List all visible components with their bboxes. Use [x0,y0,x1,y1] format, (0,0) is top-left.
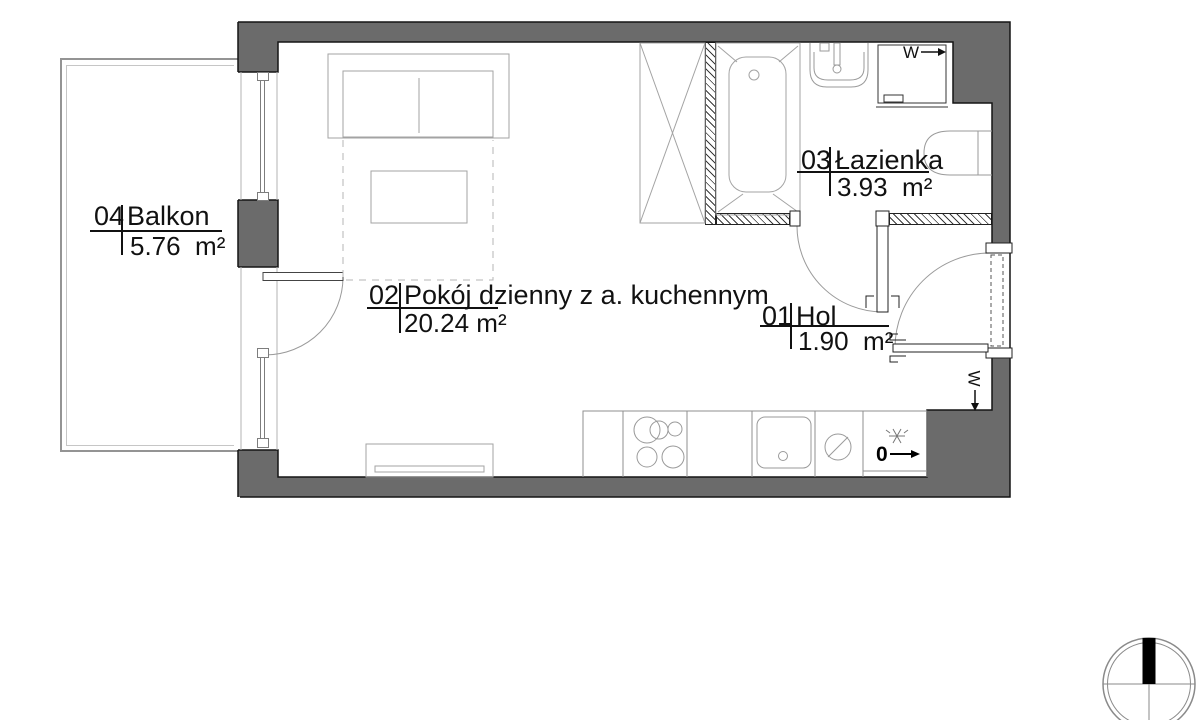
label-divider [790,303,792,349]
room-area: 5.76 m² [130,233,225,259]
bathtub [716,43,800,215]
room-name: Łazienka [835,147,943,174]
room-number: 02 [369,282,399,309]
tv-cabinet [366,444,493,477]
window-reveals [241,72,277,450]
entrance-door [890,243,1012,362]
floor-plan: 04 Balkon 5.76 m² 02 Pokój dzienny z a. … [0,0,1200,720]
kitchen-sink [757,417,811,468]
stove-burners [634,417,684,468]
plan-linework [0,0,1200,720]
room-name: Balkon [127,203,210,230]
vent-arrow-down-icon [971,390,979,411]
vent-marker-label: W [966,370,983,386]
vent-arrow-right-icon [921,48,946,56]
label-divider [829,147,831,196]
bathroom-door [790,211,899,312]
washbasin [810,43,868,87]
fridge-snowflake-icon [886,429,908,443]
bed [328,54,509,138]
north-compass-icon [1103,638,1195,720]
room-area: 1.90 m² [798,328,893,354]
wall-outlines [238,22,1010,497]
room-name: Pokój dzienny z a. kuchennym [404,282,769,309]
room-area: 3.93 m² [837,174,932,200]
washer-marker-label: W [903,44,919,61]
table [371,171,467,223]
window-frame-upper [258,73,269,201]
bed-foldout-dashed [343,140,493,280]
fridge-zero-label: 0 [876,444,888,465]
dishwasher-icon [825,434,851,460]
label-divider [121,205,123,255]
room-number: 04 [94,203,124,230]
room-area: 20.24 m² [404,310,507,336]
room-number: 03 [801,147,831,174]
wardrobe [640,43,705,223]
fridge-arrow-icon [890,450,920,458]
label-divider [399,283,401,333]
balcony-door [258,273,344,448]
